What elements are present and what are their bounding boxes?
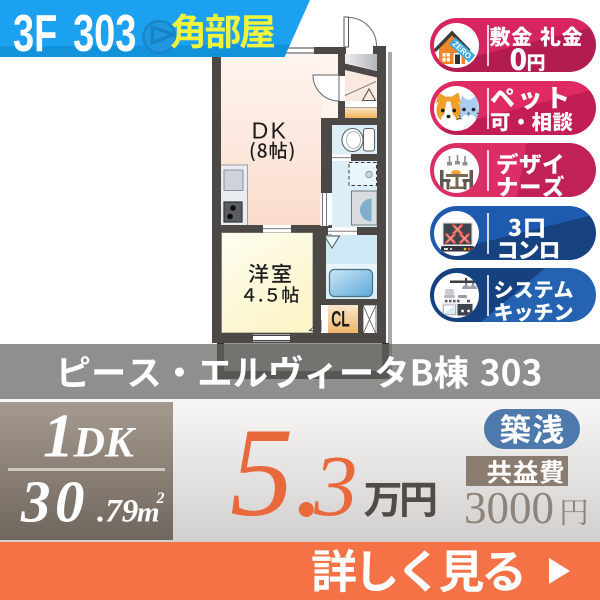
svg-text:DK: DK [73, 419, 137, 467]
svg-text:2: 2 [156, 490, 165, 507]
svg-text:1: 1 [43, 403, 74, 471]
svg-text:30: 30 [20, 469, 89, 535]
svg-text:3000: 3000 [464, 483, 554, 533]
svg-text:.79: .79 [97, 494, 138, 530]
svg-text:3: 3 [313, 437, 358, 534]
svg-text:5.: 5. [230, 403, 325, 543]
